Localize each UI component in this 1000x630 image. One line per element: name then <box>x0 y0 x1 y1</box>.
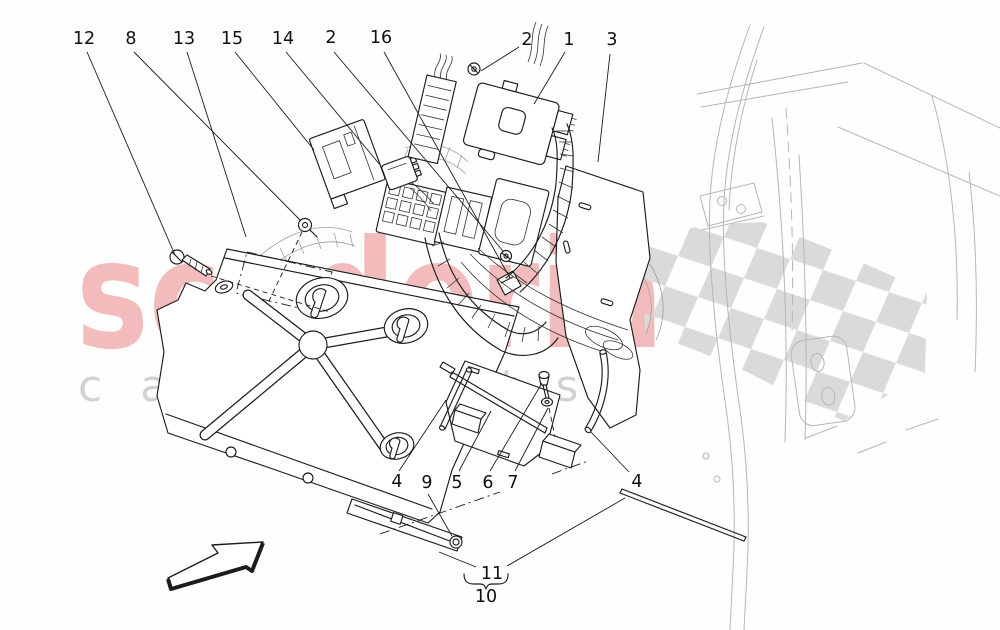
rod-11 <box>620 489 746 541</box>
screw-2-top <box>468 63 480 75</box>
callout-3: 3 <box>606 30 617 50</box>
screw-2-mid <box>501 251 512 262</box>
callout-6: 6 <box>482 473 493 493</box>
callout-15: 15 <box>221 29 243 49</box>
callout-1: 1 <box>563 30 574 50</box>
callout-14: 14 <box>272 29 294 49</box>
callout-9: 9 <box>421 473 432 493</box>
callout-16: 16 <box>370 28 392 48</box>
left-pin-connector <box>408 52 462 164</box>
checkered-flag-watermark <box>643 222 927 421</box>
callout-11: 11 <box>481 564 503 584</box>
callout-2-left: 2 <box>325 28 336 48</box>
callout-12: 12 <box>73 29 95 49</box>
direction-arrow-icon <box>168 542 263 589</box>
callout-4-right: 4 <box>631 472 642 492</box>
callout-4-left: 4 <box>391 472 402 492</box>
callout-8: 8 <box>125 29 136 49</box>
callout-5: 5 <box>451 473 462 493</box>
callout-13: 13 <box>173 29 195 49</box>
parts-diagram-page: scuderia car parts <box>0 0 1000 630</box>
rivet-9 <box>450 536 462 548</box>
relay-15 <box>309 119 389 208</box>
callout-2-upper: 2 <box>521 30 532 50</box>
callout-7: 7 <box>507 473 518 493</box>
ecu-1 <box>460 74 581 178</box>
callout-10: 10 <box>475 587 497 607</box>
